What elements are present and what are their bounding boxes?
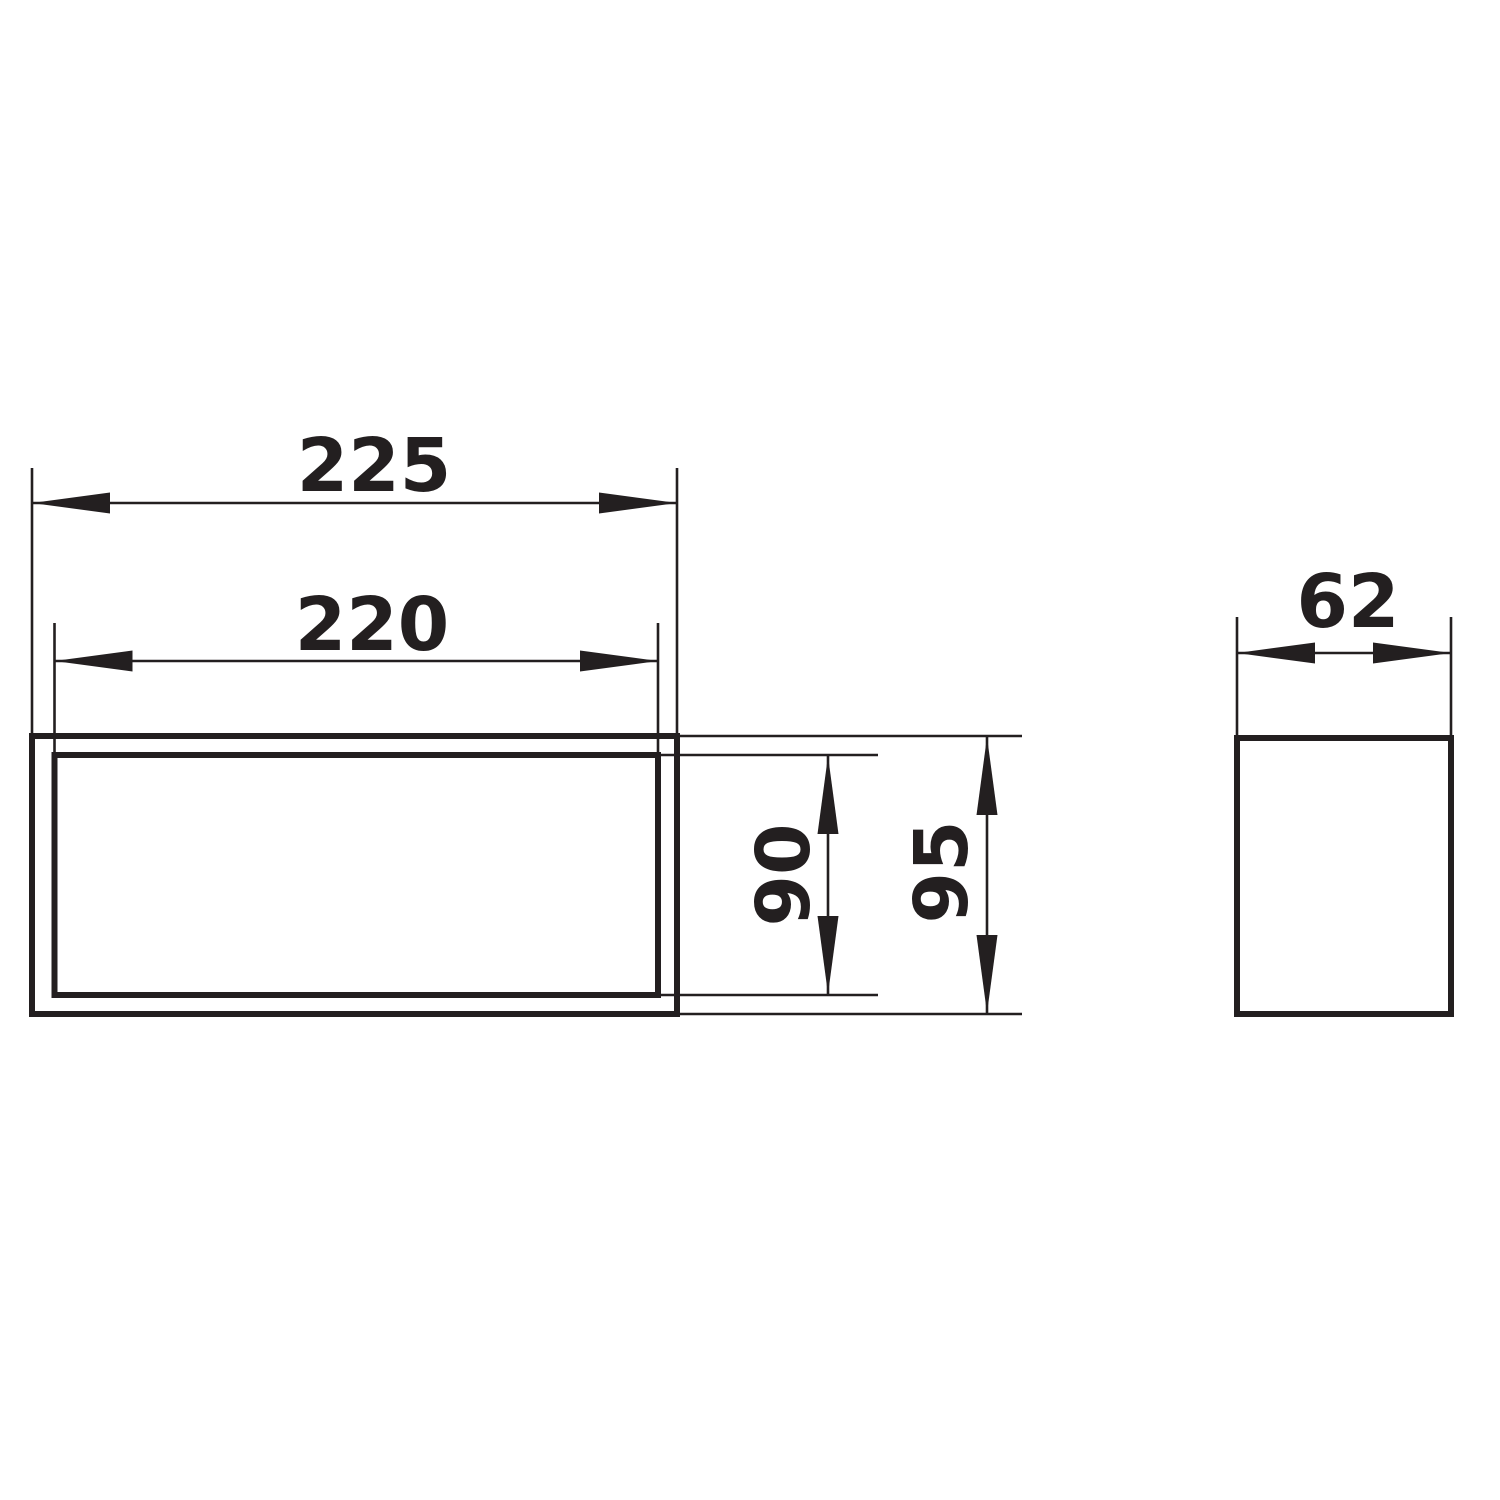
arrowhead-down-icon (818, 916, 839, 994)
dim-label-outer-width: 225 (297, 423, 451, 509)
front-view (32, 736, 677, 1014)
dimension-inner-width: 220 (55, 582, 659, 755)
arrowhead-left-icon (32, 493, 110, 514)
arrowhead-left-icon (55, 651, 133, 672)
dimension-side-width: 62 (1237, 559, 1451, 738)
dim-label-outer-height: 95 (899, 821, 985, 924)
arrowhead-up-icon (977, 737, 998, 815)
arrowhead-right-icon (1373, 643, 1451, 664)
arrowhead-right-icon (580, 651, 658, 672)
dim-label-side-width: 62 (1297, 559, 1400, 645)
arrowhead-up-icon (818, 756, 839, 834)
arrowhead-left-icon (1237, 643, 1315, 664)
technical-drawing: 225 220 90 95 (0, 0, 1500, 1500)
dim-label-inner-height: 90 (741, 824, 827, 927)
dim-label-inner-width: 220 (295, 582, 449, 668)
dimension-outer-height: 95 (680, 736, 1022, 1014)
dimension-inner-height: 90 (661, 755, 878, 995)
drawing-canvas: 225 220 90 95 (0, 0, 1500, 1500)
arrowhead-down-icon (977, 935, 998, 1013)
dimension-outer-width: 225 (32, 423, 677, 736)
front-outer-rect (32, 736, 677, 1014)
side-rect (1237, 738, 1451, 1014)
arrowhead-right-icon (599, 493, 677, 514)
side-view (1237, 738, 1451, 1014)
front-inner-rect (55, 755, 659, 995)
